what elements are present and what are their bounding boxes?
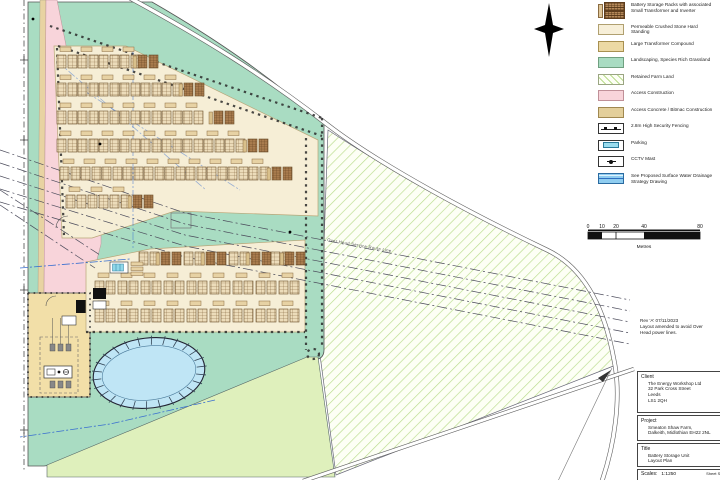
rack-transformer-bar <box>179 84 183 96</box>
small-transformer <box>210 159 221 164</box>
parking-bay-icon <box>603 142 619 148</box>
rack-cluster <box>106 281 115 294</box>
title-block-line: Dalkeith, Midlothian EH22 2NL <box>648 430 720 436</box>
title-block: Client The Energy Workshop Ltd32 Park Cr… <box>637 371 720 480</box>
rack-cluster <box>92 167 101 180</box>
rack-cluster <box>152 83 161 96</box>
rack-cluster <box>149 55 158 68</box>
rack-cluster <box>172 252 181 265</box>
small-transformer <box>207 131 218 136</box>
scales-box: Scales: 1:1250 Sheet Size A <box>637 469 720 480</box>
rack-cluster <box>99 83 108 96</box>
small-transformer <box>123 103 134 108</box>
small-transformer <box>228 131 239 136</box>
battery-rack-unit <box>267 167 292 180</box>
rack-cluster <box>183 111 192 124</box>
rack-cluster <box>68 111 77 124</box>
rack-cluster <box>207 167 216 180</box>
access-construction-swatch <box>598 90 624 101</box>
rack-cluster <box>118 281 127 294</box>
rack-cluster <box>164 281 173 294</box>
landscaping-swatch <box>598 57 624 68</box>
rack-cluster <box>161 252 170 265</box>
legend-item-access-concrete: Access Concrete / Bitmac Construction <box>598 107 720 118</box>
rack-cluster <box>89 111 98 124</box>
rack-transformer-bar <box>156 253 160 265</box>
rack-cluster <box>162 111 171 124</box>
small-transformer <box>121 301 132 306</box>
rack-cluster <box>184 252 193 265</box>
small-transformer <box>236 301 247 306</box>
rack-cluster <box>249 167 258 180</box>
small-transformer <box>126 159 137 164</box>
battery-rack-unit <box>128 195 153 208</box>
rack-cluster <box>113 167 122 180</box>
rack-cluster <box>99 55 108 68</box>
legend-label: Permeable Crushed Stone Hard Standing <box>631 24 713 36</box>
project-box: Project Smeaton Shaw Farm,Dalkeith, Midl… <box>637 415 720 441</box>
legend-item-transformer-compound: Large Transformer Compound <box>598 41 720 52</box>
compound-equipment <box>58 381 63 388</box>
rack-cluster <box>244 281 253 294</box>
battery-rack-unit <box>243 139 268 152</box>
rack-cluster <box>141 83 150 96</box>
small-transformer <box>113 187 124 192</box>
rack-cluster <box>81 167 90 180</box>
legend-item-hard-standing: Permeable Crushed Stone Hard Standing <box>598 24 720 36</box>
legend-item-cctv: CCTV Mast <box>598 156 720 167</box>
legend-label: CCTV Mast <box>631 156 713 162</box>
battery-rack-unit <box>280 252 305 265</box>
legend-label: Large Transformer Compound <box>631 41 713 47</box>
client-box: Client The Energy Workshop Ltd32 Park Cr… <box>637 371 720 413</box>
battery-rack-unit <box>179 83 204 96</box>
scales-label: Scales: <box>641 471 657 477</box>
legend-label: Landscaping, Species Rich Grassland <box>631 57 713 63</box>
rack-cluster <box>267 281 276 294</box>
parking-bay <box>113 264 124 271</box>
rack-transformer-bar <box>133 56 137 68</box>
compound-equipment <box>66 344 71 351</box>
rack-cluster <box>175 281 184 294</box>
rack-transformer-bar <box>128 196 132 208</box>
small-transformer <box>102 47 113 52</box>
compound-equipment <box>50 381 55 388</box>
transformer-bar-icon <box>598 4 603 18</box>
rack-cluster <box>218 167 227 180</box>
small-transformer <box>167 301 178 306</box>
rack-cluster <box>210 309 219 322</box>
rack-cluster-icon <box>604 2 625 11</box>
small-transformer <box>144 301 155 306</box>
rack-cluster <box>120 83 129 96</box>
rack-cluster <box>89 55 98 68</box>
rack-cluster <box>110 111 119 124</box>
equipment-bar <box>131 267 143 271</box>
rack-cluster <box>138 55 147 68</box>
title-block-line: Layout Plan <box>648 458 720 464</box>
small-transformer <box>259 273 270 278</box>
rack-cluster <box>129 309 138 322</box>
rack-cluster <box>244 309 253 322</box>
scales-value: 1:1250 <box>661 472 676 477</box>
rack-cluster <box>110 139 119 152</box>
rack-cluster <box>259 139 268 152</box>
rack-cluster <box>106 309 115 322</box>
rack-cluster <box>239 167 248 180</box>
rack-cluster <box>279 281 288 294</box>
rack-cluster <box>290 281 299 294</box>
rack-cluster <box>271 252 280 265</box>
rack-cluster <box>144 195 153 208</box>
legend-item-drainage: See Proposed Surface Water Drainage Stra… <box>598 173 720 185</box>
drainage-swatch <box>598 173 624 184</box>
rack-cluster <box>256 309 265 322</box>
battery-rack-unit <box>133 55 158 68</box>
rack-cluster <box>233 309 242 322</box>
small-transformer <box>259 301 270 306</box>
small-transformer <box>213 301 224 306</box>
survey-point <box>32 18 35 21</box>
rack-cluster <box>141 281 150 294</box>
rack-cluster <box>89 83 98 96</box>
rack-cluster <box>78 83 87 96</box>
rack-cluster <box>187 309 196 322</box>
rack-cluster <box>272 167 281 180</box>
rack-cluster <box>233 281 242 294</box>
rack-cluster <box>176 167 185 180</box>
small-transformer <box>147 159 158 164</box>
fence-post-icon <box>614 127 617 130</box>
access-concrete-swatch <box>598 107 624 118</box>
fence-post-icon <box>604 127 607 130</box>
small-transformer <box>123 131 134 136</box>
battery-rack-unit <box>156 252 181 265</box>
small-transformer <box>121 273 132 278</box>
rack-cluster <box>229 252 238 265</box>
store-building <box>93 301 106 309</box>
security-fencing-swatch <box>598 123 624 134</box>
rack-cluster <box>283 167 292 180</box>
rack-cluster <box>68 139 77 152</box>
scalebar-tick-label: 10 <box>599 224 605 230</box>
compound-equipment <box>66 381 71 388</box>
rack-cluster <box>248 139 257 152</box>
small-transformer <box>60 103 71 108</box>
small-transformer <box>165 131 176 136</box>
rack-cluster <box>152 281 161 294</box>
rack-cluster <box>57 83 66 96</box>
parking-swatch <box>598 140 624 151</box>
small-transformer <box>213 273 224 278</box>
rack-cluster <box>89 139 98 152</box>
rack-cluster <box>68 55 77 68</box>
legend: Battery Storage Racks with associated Sm… <box>598 2 720 190</box>
small-transformer <box>282 301 293 306</box>
rack-transformer-bar <box>243 140 247 152</box>
rack-cluster <box>120 139 129 152</box>
sheet-size-note: Sheet Size A <box>706 471 720 476</box>
rack-cluster <box>267 309 276 322</box>
rack-transformer-bar <box>267 168 271 180</box>
rack-cluster <box>155 167 164 180</box>
rack-cluster <box>57 111 66 124</box>
rack-cluster <box>217 252 226 265</box>
rack-cluster <box>110 83 119 96</box>
revision-line: Head power lines. <box>640 330 716 336</box>
rack-cluster <box>184 83 193 96</box>
rack-cluster <box>152 139 161 152</box>
rack-cluster <box>78 139 87 152</box>
equipment-bar <box>131 262 143 266</box>
rack-cluster <box>120 55 129 68</box>
rack-cluster <box>162 83 171 96</box>
rack-cluster <box>99 195 108 208</box>
small-transformer <box>84 159 95 164</box>
rack-cluster <box>214 111 223 124</box>
title-block-line: LS1 2QH <box>648 398 720 404</box>
small-transformer <box>168 159 179 164</box>
small-transformer <box>189 159 200 164</box>
cctv-swatch <box>598 156 624 167</box>
rack-cluster <box>279 309 288 322</box>
rack-cluster <box>206 252 215 265</box>
rack-cluster <box>256 281 265 294</box>
rack-cluster <box>194 139 203 152</box>
small-transformer <box>144 75 155 80</box>
rack-cluster <box>251 252 260 265</box>
small-transformer <box>60 47 71 52</box>
legend-label: Parking <box>631 140 713 146</box>
rack-cluster <box>99 139 108 152</box>
rack-cluster <box>141 111 150 124</box>
small-transformer <box>186 131 197 136</box>
scalebar-unit-label: Metres <box>637 244 652 250</box>
project-lines: Smeaton Shaw Farm,Dalkeith, Midlothian E… <box>648 425 720 437</box>
small-transformer <box>105 159 116 164</box>
scalebar-segment <box>588 232 602 239</box>
rack-cluster <box>198 281 207 294</box>
hard-standing-swatch <box>598 24 624 35</box>
rack-cluster <box>187 281 196 294</box>
small-transformer <box>144 103 155 108</box>
rack-cluster <box>78 55 87 68</box>
battery-rack-unit <box>209 111 234 124</box>
compound-building <box>76 300 87 313</box>
legend-label: Access Construction <box>631 90 713 96</box>
small-transformer <box>81 131 92 136</box>
small-transformer <box>81 75 92 80</box>
rack-cluster <box>131 83 140 96</box>
rack-cluster <box>129 281 138 294</box>
rack-cluster <box>95 309 104 322</box>
rack-cluster <box>225 111 234 124</box>
rack-cluster <box>198 309 207 322</box>
compound-equipment <box>50 344 55 351</box>
rack-cluster <box>228 167 237 180</box>
rack-cluster <box>134 167 143 180</box>
rack-cluster <box>296 252 305 265</box>
small-transformer <box>98 273 109 278</box>
rack-cluster <box>110 195 119 208</box>
rack-cluster <box>221 281 230 294</box>
small-transformer <box>123 47 134 52</box>
equipment-bar <box>131 272 143 276</box>
rack-cluster <box>102 167 111 180</box>
battery-rack-unit <box>246 252 271 265</box>
rack-cluster <box>194 111 203 124</box>
rack-cluster <box>183 139 192 152</box>
rack-cluster <box>144 167 153 180</box>
small-transformer <box>190 273 201 278</box>
small-transformer <box>60 75 71 80</box>
legend-label: 2.8m High Security Fencing <box>631 123 713 129</box>
rack-transformer-bar <box>280 253 284 265</box>
rack-cluster <box>60 167 69 180</box>
small-transformer <box>60 131 71 136</box>
rack-cluster <box>285 252 294 265</box>
rack-cluster <box>78 111 87 124</box>
rack-cluster <box>152 309 161 322</box>
small-transformer <box>282 273 293 278</box>
small-transformer <box>123 75 134 80</box>
small-transformer <box>81 47 92 52</box>
rack-transformer-bar <box>209 112 213 124</box>
north-arrow <box>534 3 564 57</box>
small-transformer <box>102 75 113 80</box>
project-label: Project <box>641 418 720 424</box>
legend-item-farm-land: Retained Farm Land <box>598 74 720 85</box>
rack-cluster <box>215 139 224 152</box>
rack-cluster-icon <box>604 11 625 20</box>
small-transformer <box>236 273 247 278</box>
rack-cluster <box>123 167 132 180</box>
rack-transformer-bar <box>201 253 205 265</box>
rack-cluster <box>110 55 119 68</box>
transformer-compound-swatch <box>598 41 624 52</box>
rack-cluster <box>186 167 195 180</box>
scalebar-segment <box>644 232 700 239</box>
small-transformer <box>102 103 113 108</box>
legend-label: See Proposed Surface Water Drainage Stra… <box>631 173 713 185</box>
rack-cluster <box>197 167 206 180</box>
scalebar-tick-label: 80 <box>697 224 703 230</box>
rack-cluster <box>173 111 182 124</box>
rack-cluster <box>225 139 234 152</box>
control-building <box>93 288 106 299</box>
compound-equipment <box>58 344 63 351</box>
client-lines: The Energy Workshop Ltd32 Park Cross Str… <box>648 381 720 405</box>
farm-land-swatch <box>598 74 624 85</box>
rack-cluster <box>131 111 140 124</box>
small-transformer <box>144 131 155 136</box>
rack-cluster <box>133 195 142 208</box>
compound-symbol <box>58 371 61 374</box>
battery-racks-swatch <box>598 2 624 18</box>
title-lines: Battery Storage UnitLayout Plan <box>648 453 720 465</box>
rack-transformer-bar <box>246 253 250 265</box>
small-transformer <box>63 159 74 164</box>
rack-cluster <box>66 195 75 208</box>
site-plan-page: Over Head Service Route Line010204080Met… <box>0 0 720 480</box>
title-label: Title <box>641 446 720 452</box>
small-transformer <box>167 273 178 278</box>
legend-label: Battery Storage Racks with associated Sm… <box>631 2 713 14</box>
client-label: Client <box>641 374 720 380</box>
rack-cluster <box>77 195 86 208</box>
rack-cluster <box>262 252 271 265</box>
rack-cluster <box>120 111 129 124</box>
rack-cluster <box>131 139 140 152</box>
rack-cluster <box>165 167 174 180</box>
survey-point <box>289 231 292 234</box>
rack-cluster <box>118 309 127 322</box>
rack-cluster <box>173 139 182 152</box>
rack-cluster <box>210 281 219 294</box>
rack-cluster <box>221 309 230 322</box>
legend-label: Access Concrete / Bitmac Construction <box>631 107 713 113</box>
rack-cluster <box>88 195 97 208</box>
survey-point <box>99 143 102 146</box>
small-transformer <box>81 103 92 108</box>
small-transformer <box>186 103 197 108</box>
rack-cluster <box>175 309 184 322</box>
rack-cluster <box>141 309 150 322</box>
rack-cluster <box>204 139 213 152</box>
scalebar-tick-label: 20 <box>613 224 619 230</box>
rack-cluster <box>68 83 77 96</box>
compound-building-2 <box>62 316 76 325</box>
revision-note: Rev 'A' 07/11/2023 Layout amended to avo… <box>640 318 716 337</box>
legend-item-battery-racks: Battery Storage Racks with associated Sm… <box>598 2 720 18</box>
legend-item-landscaping: Landscaping, Species Rich Grassland <box>598 57 720 68</box>
rack-cluster <box>152 111 161 124</box>
rack-cluster <box>99 111 108 124</box>
small-transformer <box>91 187 102 192</box>
legend-label: Retained Farm Land <box>631 74 713 80</box>
title-box: Title Battery Storage UnitLayout Plan <box>637 443 720 467</box>
small-transformer <box>165 103 176 108</box>
small-transformer <box>144 273 155 278</box>
small-transformer <box>231 159 242 164</box>
rack-cluster <box>195 83 204 96</box>
rack-cluster <box>162 139 171 152</box>
legend-item-security-fencing: 2.8m High Security Fencing <box>598 123 720 134</box>
small-transformer <box>252 159 263 164</box>
small-transformer <box>102 131 113 136</box>
small-transformer <box>190 301 201 306</box>
rack-cluster <box>164 309 173 322</box>
scalebar-tick-label: 0 <box>587 224 590 230</box>
rack-cluster <box>290 309 299 322</box>
rack-cluster <box>57 55 66 68</box>
legend-item-access-construction: Access Construction <box>598 90 720 101</box>
rack-cluster <box>71 167 80 180</box>
legend-item-parking: Parking <box>598 140 720 151</box>
small-transformer <box>165 75 176 80</box>
rack-cluster <box>57 139 66 152</box>
small-transformer <box>69 187 80 192</box>
battery-rack-unit <box>201 252 226 265</box>
scalebar-tick-label: 40 <box>641 224 647 230</box>
rack-cluster <box>141 139 150 152</box>
